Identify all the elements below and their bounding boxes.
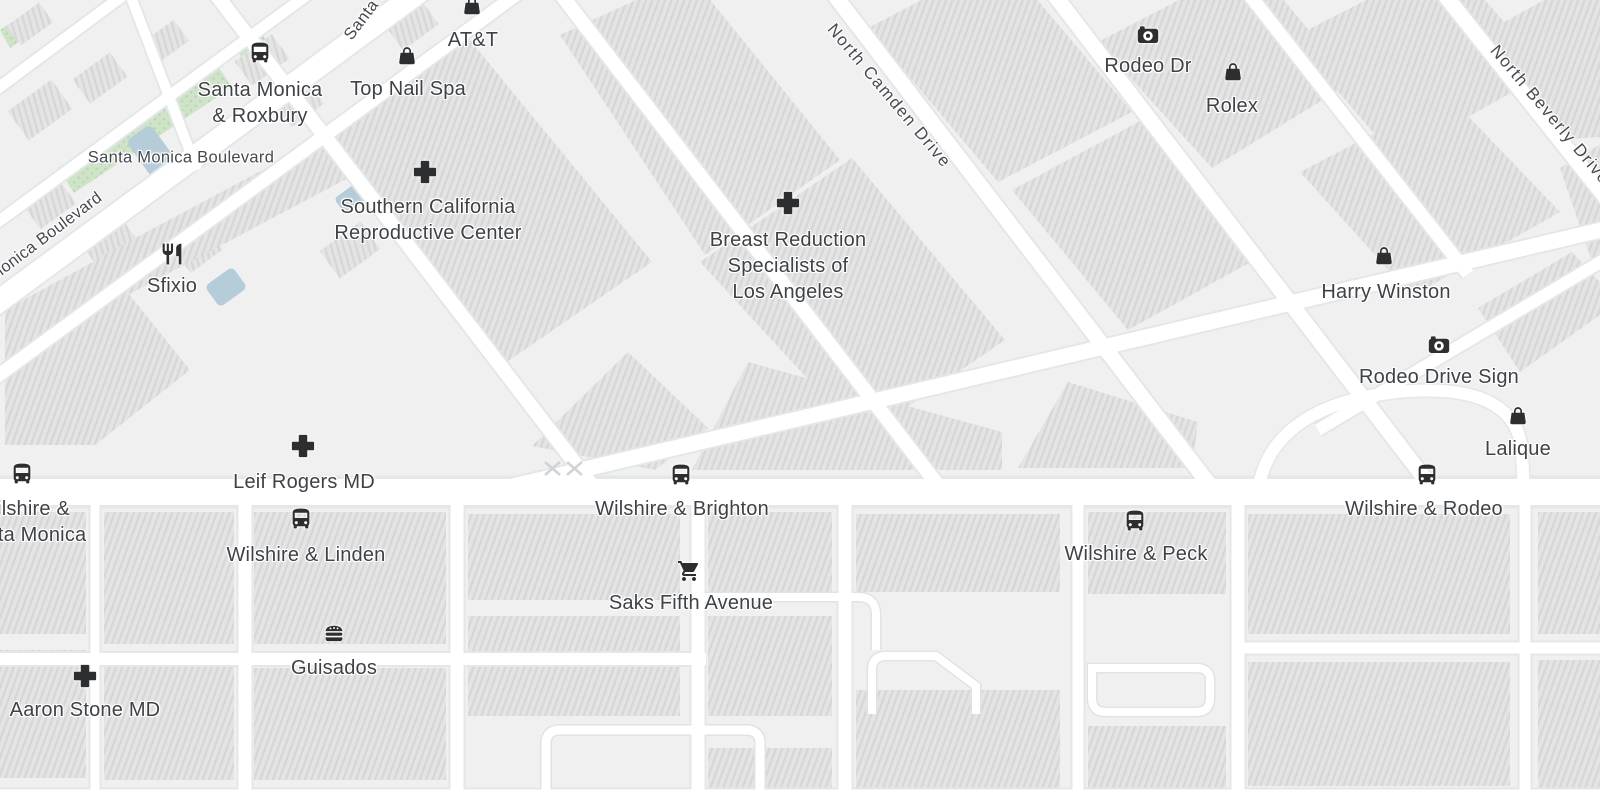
poi-label-line: Los Angeles xyxy=(710,279,867,305)
poi-label-line: AT&T xyxy=(448,27,498,53)
bus-icon[interactable] xyxy=(248,41,273,66)
cross-icon[interactable] xyxy=(289,432,318,461)
burger-icon[interactable] xyxy=(322,621,347,646)
poi-label-line: Wilshire & Brighton xyxy=(595,496,769,522)
poi-label: Leif Rogers MD xyxy=(233,469,375,495)
poi-label: AT&T xyxy=(448,27,498,53)
poi-label: Saks Fifth Avenue xyxy=(609,590,773,616)
poi-label-line: Sfixio xyxy=(147,273,197,299)
poi-label: Rodeo Drive Sign xyxy=(1359,364,1519,390)
poi-label-line: Specialists of xyxy=(710,253,867,279)
poi-label: Aaron Stone MD xyxy=(10,697,161,723)
poi-label: Lalique xyxy=(1485,436,1551,462)
poi-label-line: & Roxbury xyxy=(198,103,323,129)
poi-label: Wilshire & Brighton xyxy=(595,496,769,522)
poi-label-line: Wilshire & Peck xyxy=(1064,541,1207,567)
poi-label-line: Wilshire & Linden xyxy=(226,542,385,568)
poi-label-line: Top Nail Spa xyxy=(350,76,466,102)
poi-label-line: Rodeo Dr xyxy=(1104,53,1191,79)
poi-label: Rolex xyxy=(1206,93,1258,119)
bus-icon[interactable] xyxy=(669,463,694,488)
poi-label: Guisados xyxy=(291,655,377,681)
poi-label-line: Leif Rogers MD xyxy=(233,469,375,495)
poi-label: Santa Monica& Roxbury xyxy=(198,77,323,129)
restaurant-icon[interactable] xyxy=(160,242,185,267)
poi-label: Breast ReductionSpecialists ofLos Angele… xyxy=(710,227,867,305)
bus-icon[interactable] xyxy=(289,507,314,532)
poi-label: Rodeo Dr xyxy=(1104,53,1191,79)
cross-icon[interactable] xyxy=(411,158,440,187)
poi-label-line: Santa Monica xyxy=(0,522,86,548)
poi-label-line: Wilshire & Rodeo xyxy=(1345,496,1503,522)
bus-icon[interactable] xyxy=(1415,463,1440,488)
poi-label-line: Southern California xyxy=(334,194,521,220)
cart-icon[interactable] xyxy=(677,559,701,583)
bag-icon[interactable] xyxy=(460,0,484,18)
poi-label-line: Guisados xyxy=(291,655,377,681)
poi-label-line: Rodeo Drive Sign xyxy=(1359,364,1519,390)
poi-label-line: Aaron Stone MD xyxy=(10,697,161,723)
camera-icon[interactable] xyxy=(1135,22,1161,48)
poi-label-line: Santa Monica xyxy=(198,77,323,103)
cross-icon[interactable] xyxy=(71,662,100,691)
bus-icon[interactable] xyxy=(10,462,35,487)
map-canvas[interactable]: Santa Monica BoulevardSanta Monica Boule… xyxy=(0,0,1600,800)
poi-label: Wilshire & Rodeo xyxy=(1345,496,1503,522)
camera-icon[interactable] xyxy=(1426,332,1452,358)
poi-label: Top Nail Spa xyxy=(350,76,466,102)
poi-layer: Santa Monica& RoxburyTop Nail SpaAT&TSfi… xyxy=(0,0,1600,800)
poi-label-line: Saks Fifth Avenue xyxy=(609,590,773,616)
poi-label-line: Wilshire & xyxy=(0,496,86,522)
poi-label-line: Lalique xyxy=(1485,436,1551,462)
cross-icon[interactable] xyxy=(774,189,803,218)
poi-label: Wilshire & Linden xyxy=(226,542,385,568)
bag-icon[interactable] xyxy=(1372,244,1396,268)
poi-label-line: Harry Winston xyxy=(1321,279,1450,305)
poi-label: Wilshire &Santa Monica xyxy=(0,496,86,548)
bag-icon[interactable] xyxy=(1221,60,1245,84)
poi-label: Wilshire & Peck xyxy=(1064,541,1207,567)
poi-label: Southern CaliforniaReproductive Center xyxy=(334,194,521,246)
poi-label-line: Rolex xyxy=(1206,93,1258,119)
bag-icon[interactable] xyxy=(1506,404,1530,428)
bus-icon[interactable] xyxy=(1123,509,1148,534)
poi-label-line: Reproductive Center xyxy=(334,220,521,246)
poi-label: Harry Winston xyxy=(1321,279,1450,305)
bag-icon[interactable] xyxy=(395,44,419,68)
poi-label-line: Breast Reduction xyxy=(710,227,867,253)
poi-label: Sfixio xyxy=(147,273,197,299)
